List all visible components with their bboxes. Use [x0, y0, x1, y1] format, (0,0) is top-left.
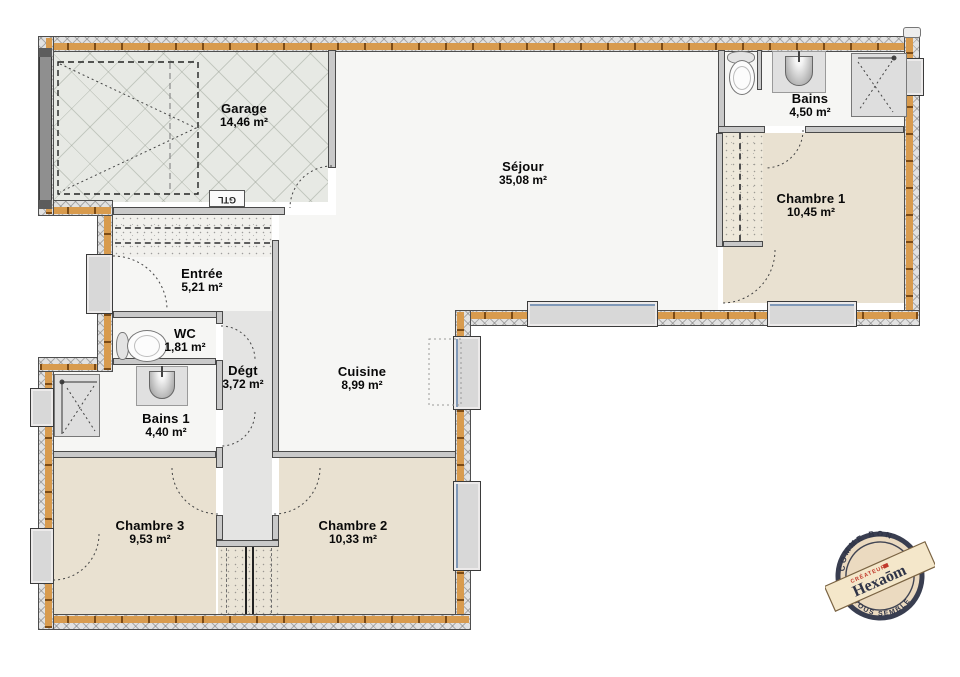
- wall-degt-west-seg: [216, 447, 223, 468]
- shower-bains: [851, 53, 907, 117]
- room-name: Chambre 3: [116, 518, 185, 533]
- wall-south: [38, 614, 471, 630]
- wall-garage-east: [328, 50, 336, 168]
- hatch-dash-line: [115, 242, 270, 244]
- window-chambre3: [30, 528, 54, 584]
- garage-door-cap: [39, 48, 52, 57]
- room-label-chambre2: Chambre 2 10,33 m²: [319, 518, 388, 546]
- garage-door: [39, 54, 52, 204]
- attic-hatch-strip: [113, 215, 272, 257]
- cuisine-floor: [279, 215, 456, 451]
- window-bay-sejour: [527, 301, 658, 327]
- vent-mark: [903, 27, 921, 38]
- room-name: Séjour: [499, 159, 547, 174]
- room-area: 4,50 m²: [789, 106, 830, 119]
- hatch-dash-line: [226, 548, 227, 613]
- room-label-bains: Bains 4,50 m²: [789, 91, 830, 119]
- wall-bains-west: [718, 50, 725, 128]
- shower-bains1: [54, 374, 100, 437]
- stamp-ring-top-text: COMME BON: [829, 523, 902, 574]
- room-area: 3,72 m²: [222, 378, 263, 391]
- room-label-degt: Dégt 3,72 m²: [222, 363, 263, 391]
- wall-degt-east: [272, 240, 279, 458]
- room-area: 4,40 m²: [142, 426, 190, 439]
- svg-text:COMME BON: COMME BON: [829, 523, 902, 574]
- closet-chambre1: [723, 133, 763, 241]
- window-chambre1: [767, 301, 857, 327]
- room-area: 8,99 m²: [338, 379, 386, 392]
- room-name: Cuisine: [338, 364, 386, 379]
- gtl-label: GTL: [209, 190, 245, 207]
- wall-wc-north: [113, 311, 223, 318]
- hatch-dash-line: [115, 227, 270, 229]
- wall-wood-layer: [40, 616, 469, 623]
- room-name: Chambre 1: [777, 191, 846, 206]
- window-glass: [770, 304, 854, 306]
- party-wall-line: [245, 547, 254, 614]
- room-label-garage: Garage 14,46 m²: [220, 101, 268, 129]
- wall-closet-cap: [723, 241, 763, 247]
- window-cuisine: [453, 336, 481, 410]
- window-glass: [456, 339, 458, 407]
- room-name: Bains 1: [142, 411, 190, 426]
- wall-bains-south-seg: [805, 126, 904, 133]
- closet-door-line: [739, 133, 741, 241]
- room-label-sejour: Séjour 35,08 m²: [499, 159, 547, 187]
- garage-door-cap: [39, 200, 52, 209]
- window-glass: [456, 484, 458, 568]
- wall-degt-west-seg: [216, 515, 223, 540]
- room-name: WC: [164, 326, 205, 341]
- room-area: 14,46 m²: [220, 116, 268, 129]
- window-glass: [530, 304, 655, 306]
- window-bains1: [30, 388, 54, 427]
- floor-plan: Garage 14,46 m² Séjour 35,08 m² Bains 4,…: [0, 0, 960, 677]
- window-chambre2: [453, 481, 481, 571]
- wall-degt-south-cap: [216, 540, 279, 547]
- hatch-dash-line: [271, 548, 272, 613]
- wall-north: [38, 36, 918, 52]
- wall-chambre1-west: [716, 133, 723, 247]
- room-area: 1,81 m²: [164, 341, 205, 354]
- sink-faucet: [161, 366, 163, 377]
- bottom-hatch-strip: [218, 547, 280, 614]
- room-label-entree: Entrée 5,21 m²: [181, 266, 223, 294]
- room-area: 10,33 m²: [319, 533, 388, 546]
- wall-bains-south-seg: [718, 126, 765, 133]
- toilet-bowl-inner: [134, 335, 160, 357]
- room-label-chambre3: Chambre 3 9,53 m²: [116, 518, 185, 546]
- stamp-brand: Hexaōm: [850, 562, 909, 601]
- wall-wood-layer: [40, 43, 916, 50]
- front-door: [86, 254, 113, 314]
- room-label-wc: WC 1,81 m²: [164, 326, 205, 354]
- wall-chambre3-north: [53, 451, 216, 458]
- stamp-tagline: CRÉATEUR: [849, 562, 887, 585]
- room-area: 10,45 m²: [777, 206, 846, 219]
- room-name: Bains: [789, 91, 830, 106]
- room-label-cuisine: Cuisine 8,99 m²: [338, 364, 386, 392]
- wall-wc-bains1-divider: [113, 358, 216, 365]
- room-area: 9,53 m²: [116, 533, 185, 546]
- toilet-bowl-inner: [733, 66, 751, 90]
- room-label-chambre1: Chambre 1 10,45 m²: [777, 191, 846, 219]
- wall-chambre2-north: [272, 451, 456, 458]
- garage-floor: [54, 52, 328, 202]
- room-label-bains1: Bains 1 4,40 m²: [142, 411, 190, 439]
- room-name: Dégt: [222, 363, 263, 378]
- room-area: 35,08 m²: [499, 174, 547, 187]
- room-name: Chambre 2: [319, 518, 388, 533]
- wall-toilet-partition: [757, 50, 762, 90]
- wall-degt-east-seg: [272, 515, 279, 540]
- room-name: Garage: [220, 101, 268, 116]
- degt-floor: [223, 311, 272, 540]
- stamp-ring-bottom-text: VOUS SEMBLE: [851, 582, 915, 627]
- room-area: 5,21 m²: [181, 281, 223, 294]
- builder-stamp: COMME BON VOUS SEMBLE CRÉATEUR Hexaōm: [825, 521, 935, 631]
- wall-entree-north: [113, 207, 285, 215]
- wall-degt-west-seg: [216, 311, 223, 324]
- room-name: Entrée: [181, 266, 223, 281]
- sink-faucet: [798, 51, 800, 62]
- svg-text:VOUS SEMBLE: VOUS SEMBLE: [851, 582, 915, 627]
